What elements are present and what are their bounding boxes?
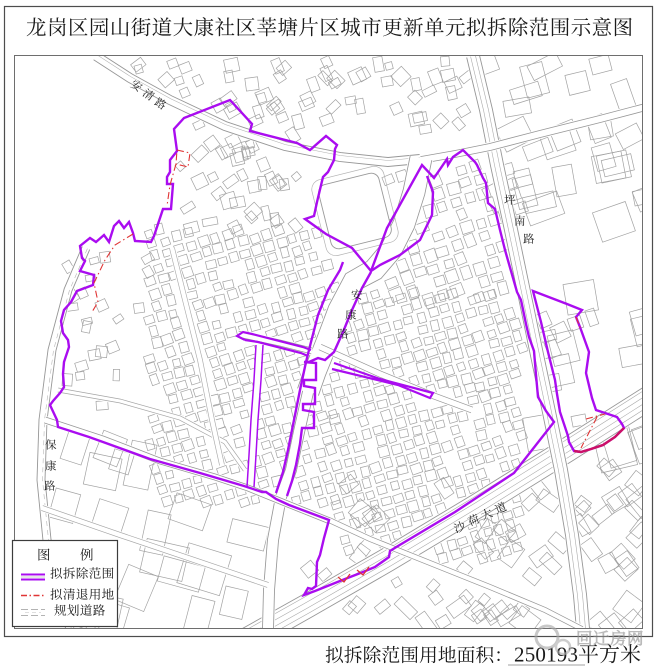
- svg-text:250193: 250193: [514, 643, 578, 667]
